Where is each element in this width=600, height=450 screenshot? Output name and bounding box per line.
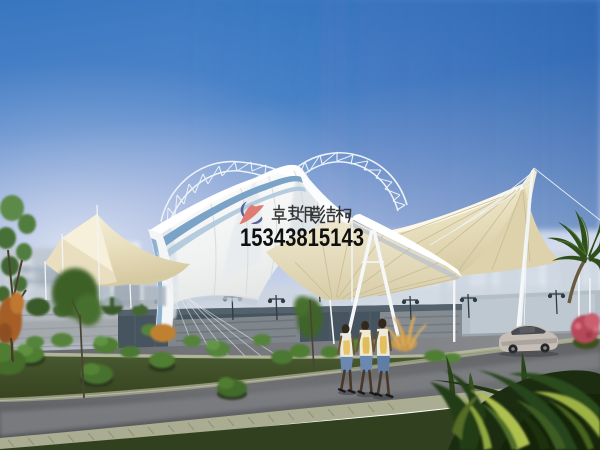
svg-text:15343815143: 15343815143	[240, 224, 364, 252]
